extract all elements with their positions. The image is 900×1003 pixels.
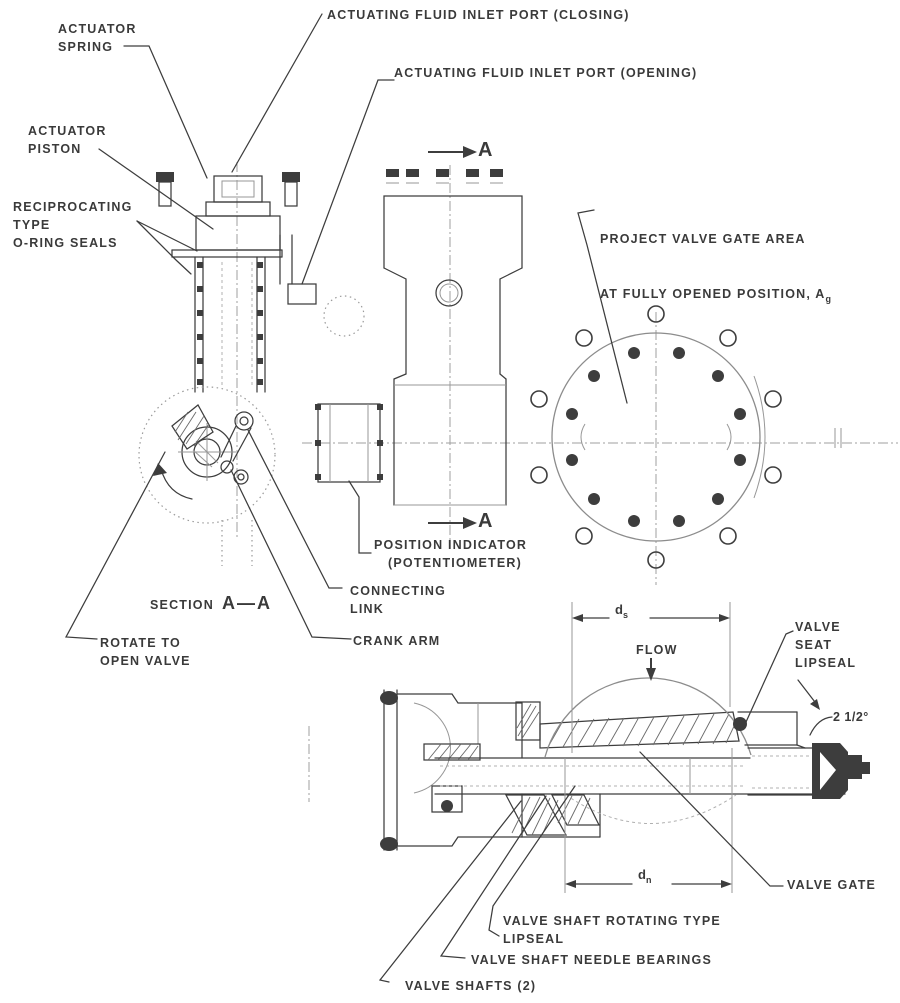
callout-needle-bearings: VALVE SHAFT NEEDLE BEARINGS (471, 951, 712, 969)
callout-inlet-opening: ACTUATING FLUID INLET PORT (OPENING) (394, 64, 697, 82)
valve-actuator-figure: ACTUATOR SPRING ACTUATING FLUID INLET PO… (0, 0, 900, 1003)
section-letters: A—A (222, 590, 272, 616)
callout-seat-angle: 2 1/2° (833, 708, 869, 726)
callout-crank-arm: CRANK ARM (353, 632, 440, 650)
seat-stub-part (516, 702, 540, 740)
bolt-heads (386, 169, 503, 183)
callout-project-gate-area: PROJECT VALVE GATE AREA AT FULLY OPENED … (600, 194, 832, 342)
callout-position-indicator: POSITION INDICATOR (POTENTIOMETER) (374, 536, 527, 572)
callout-rotate-open: ROTATE TO OPEN VALVE (100, 634, 191, 670)
rotate-direction-arrow (161, 469, 192, 499)
project-gate-line1: PROJECT VALVE GATE AREA (600, 230, 832, 248)
callout-connecting-link: CONNECTING LINK (350, 582, 446, 618)
callout-actuator-spring: ACTUATOR SPRING (58, 20, 137, 56)
callout-valve-seat-lipseal: VALVE SEAT LIPSEAL (795, 618, 856, 672)
callout-valve-shafts: VALVE SHAFTS (2) (405, 977, 536, 995)
callout-valve-gate: VALVE GATE (787, 876, 876, 894)
side-view (315, 146, 522, 548)
section-word: SECTION (150, 596, 214, 614)
diagram-linework (0, 0, 900, 1003)
cut-letter-a-bottom: A (478, 507, 492, 536)
ds-subscript: s (623, 610, 628, 620)
section-title: SECTION A—A (150, 590, 272, 616)
project-gate-line2: AT FULLY OPENED POSITION, Ag (600, 285, 832, 306)
valve-seat-lipseal-part (733, 717, 747, 731)
dn-subscript: n (646, 875, 652, 885)
spring-coil-marks (197, 262, 263, 385)
dimension-dn-label: dn (638, 866, 651, 887)
callout-actuator-piston: ACTUATOR PISTON (28, 122, 107, 158)
section-aa-view (139, 162, 316, 566)
callout-shaft-lipseal: VALVE SHAFT ROTATING TYPE LIPSEAL (503, 912, 721, 948)
dimension-ds-label: ds (615, 601, 628, 622)
needle-bearing-part (506, 795, 566, 835)
callout-flow: FLOW (636, 641, 678, 659)
callout-oring-seals: RECIPROCATING TYPE O-RING SEALS (13, 198, 133, 252)
flange-front-view (531, 306, 841, 585)
callout-inlet-closing: ACTUATING FLUID INLET PORT (CLOSING) (327, 6, 630, 24)
cut-letter-a-top: A (478, 136, 492, 165)
gate-area-subscript: g (825, 294, 832, 304)
